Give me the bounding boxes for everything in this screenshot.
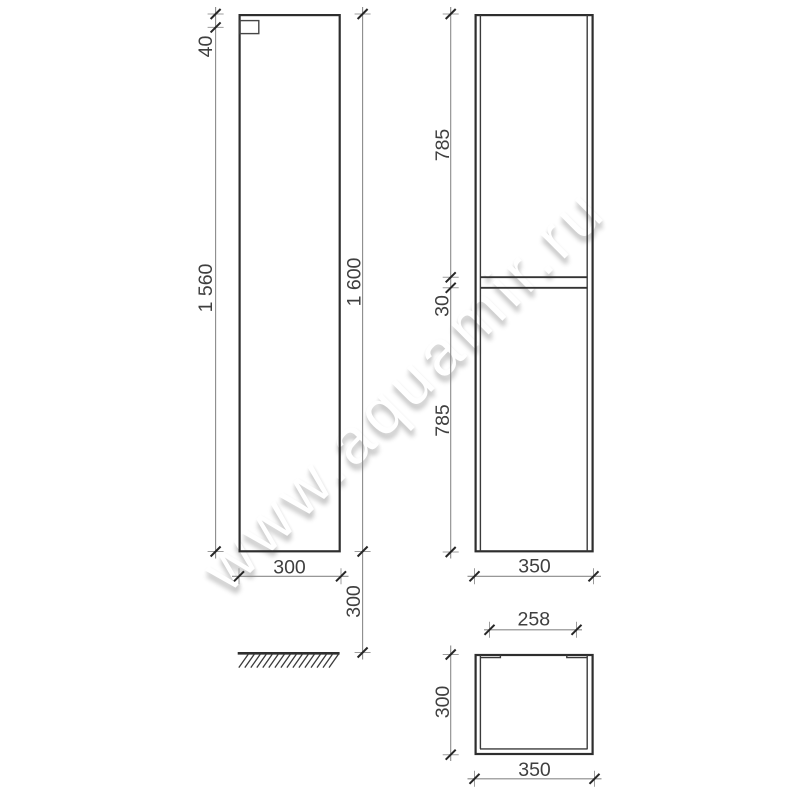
- svg-text:1 560: 1 560: [195, 263, 217, 312]
- svg-text:300: 300: [343, 585, 365, 618]
- svg-text:1 600: 1 600: [344, 257, 366, 306]
- svg-text:258: 258: [518, 609, 551, 631]
- svg-text:40: 40: [195, 36, 217, 58]
- svg-text:785: 785: [432, 129, 454, 162]
- svg-text:300: 300: [273, 557, 306, 579]
- svg-text:300: 300: [432, 686, 454, 719]
- svg-text:30: 30: [432, 295, 454, 317]
- svg-text:350: 350: [518, 556, 551, 578]
- svg-text:350: 350: [518, 759, 551, 781]
- svg-text:785: 785: [432, 404, 454, 437]
